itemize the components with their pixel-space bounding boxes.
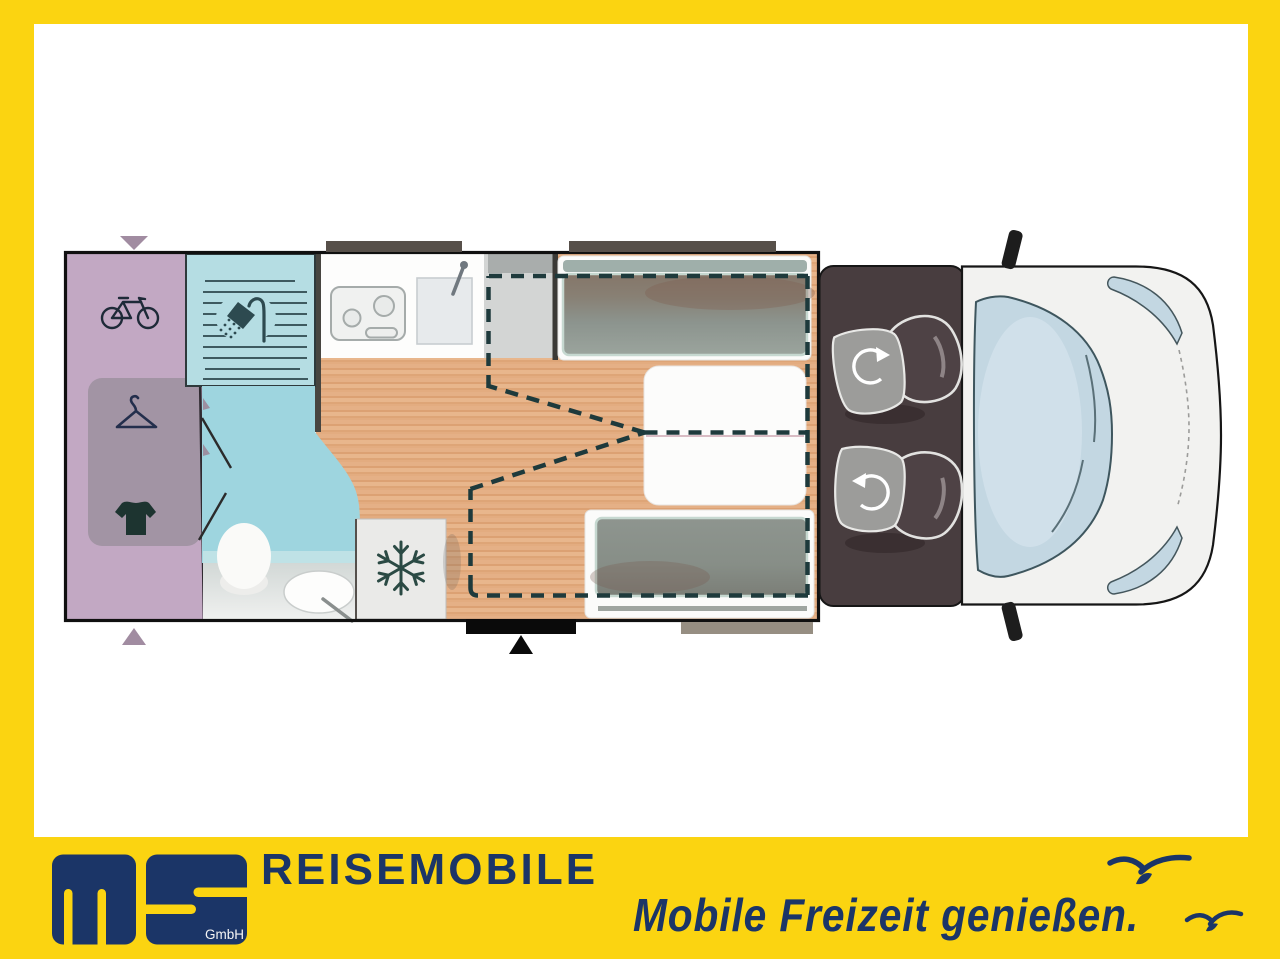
- svg-text:GmbH: GmbH: [205, 927, 244, 942]
- svg-text:Mobile Freizeit genießen.: Mobile Freizeit genießen.: [633, 891, 1139, 942]
- svg-text:REISEMOBILE: REISEMOBILE: [261, 845, 598, 894]
